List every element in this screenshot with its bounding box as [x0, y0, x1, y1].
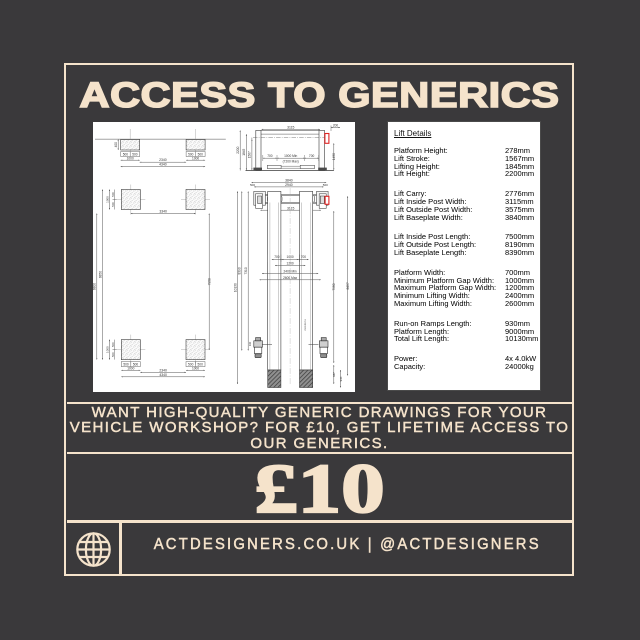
svg-text:8390: 8390	[238, 267, 242, 274]
svg-text:200: 200	[333, 124, 339, 128]
svg-text:6850: 6850	[98, 271, 102, 278]
svg-text:7950: 7950	[208, 278, 212, 285]
svg-text:1000: 1000	[192, 156, 199, 160]
svg-text:2400 Min: 2400 Min	[284, 269, 297, 273]
svg-text:700: 700	[301, 255, 307, 259]
svg-text:1000: 1000	[105, 346, 109, 353]
svg-text:700: 700	[309, 154, 315, 158]
svg-text:700: 700	[267, 154, 273, 158]
svg-text:3840: 3840	[285, 179, 293, 183]
svg-text:500: 500	[111, 342, 115, 347]
svg-text:3115: 3115	[287, 125, 294, 129]
svg-text:1450: 1450	[332, 153, 336, 160]
svg-text:1200: 1200	[287, 261, 294, 265]
svg-text:xtended a: xtended a	[303, 319, 307, 331]
svg-text:1000: 1000	[127, 367, 134, 371]
svg-text:500: 500	[250, 183, 255, 187]
svg-text:2340: 2340	[159, 369, 167, 373]
svg-text:500: 500	[111, 192, 115, 197]
svg-text:1567: 1567	[248, 151, 252, 158]
svg-text:1000 Min: 1000 Min	[284, 154, 297, 158]
svg-text:2600 Max: 2600 Max	[283, 276, 297, 280]
svg-text:4340: 4340	[159, 163, 167, 167]
svg-text:987: 987	[332, 372, 336, 377]
svg-text:1000: 1000	[192, 367, 199, 371]
svg-text:500: 500	[111, 352, 115, 357]
svg-text:10130: 10130	[233, 283, 237, 292]
svg-text:400: 400	[114, 142, 118, 148]
svg-text:8657: 8657	[346, 282, 350, 289]
svg-text:7310: 7310	[244, 267, 248, 274]
svg-text:2340: 2340	[159, 158, 167, 162]
svg-text:1000: 1000	[127, 156, 134, 160]
svg-text:500: 500	[323, 183, 328, 187]
svg-text:1000: 1000	[287, 255, 294, 259]
svg-text:(7200 Max): (7200 Max)	[283, 160, 299, 164]
svg-text:930: 930	[339, 376, 343, 381]
svg-text:340: 340	[248, 341, 252, 346]
svg-text:500: 500	[111, 202, 115, 207]
svg-text:1845: 1845	[242, 148, 246, 155]
svg-text:7950: 7950	[332, 283, 336, 290]
svg-text:4340: 4340	[159, 373, 167, 377]
svg-text:2940: 2940	[285, 183, 293, 187]
svg-text:1000: 1000	[105, 196, 109, 203]
svg-text:3115: 3115	[287, 206, 294, 210]
svg-text:700: 700	[274, 255, 280, 259]
svg-text:3340: 3340	[159, 210, 167, 214]
svg-text:6800: 6800	[93, 283, 97, 290]
svg-text:2200: 2200	[236, 146, 240, 153]
